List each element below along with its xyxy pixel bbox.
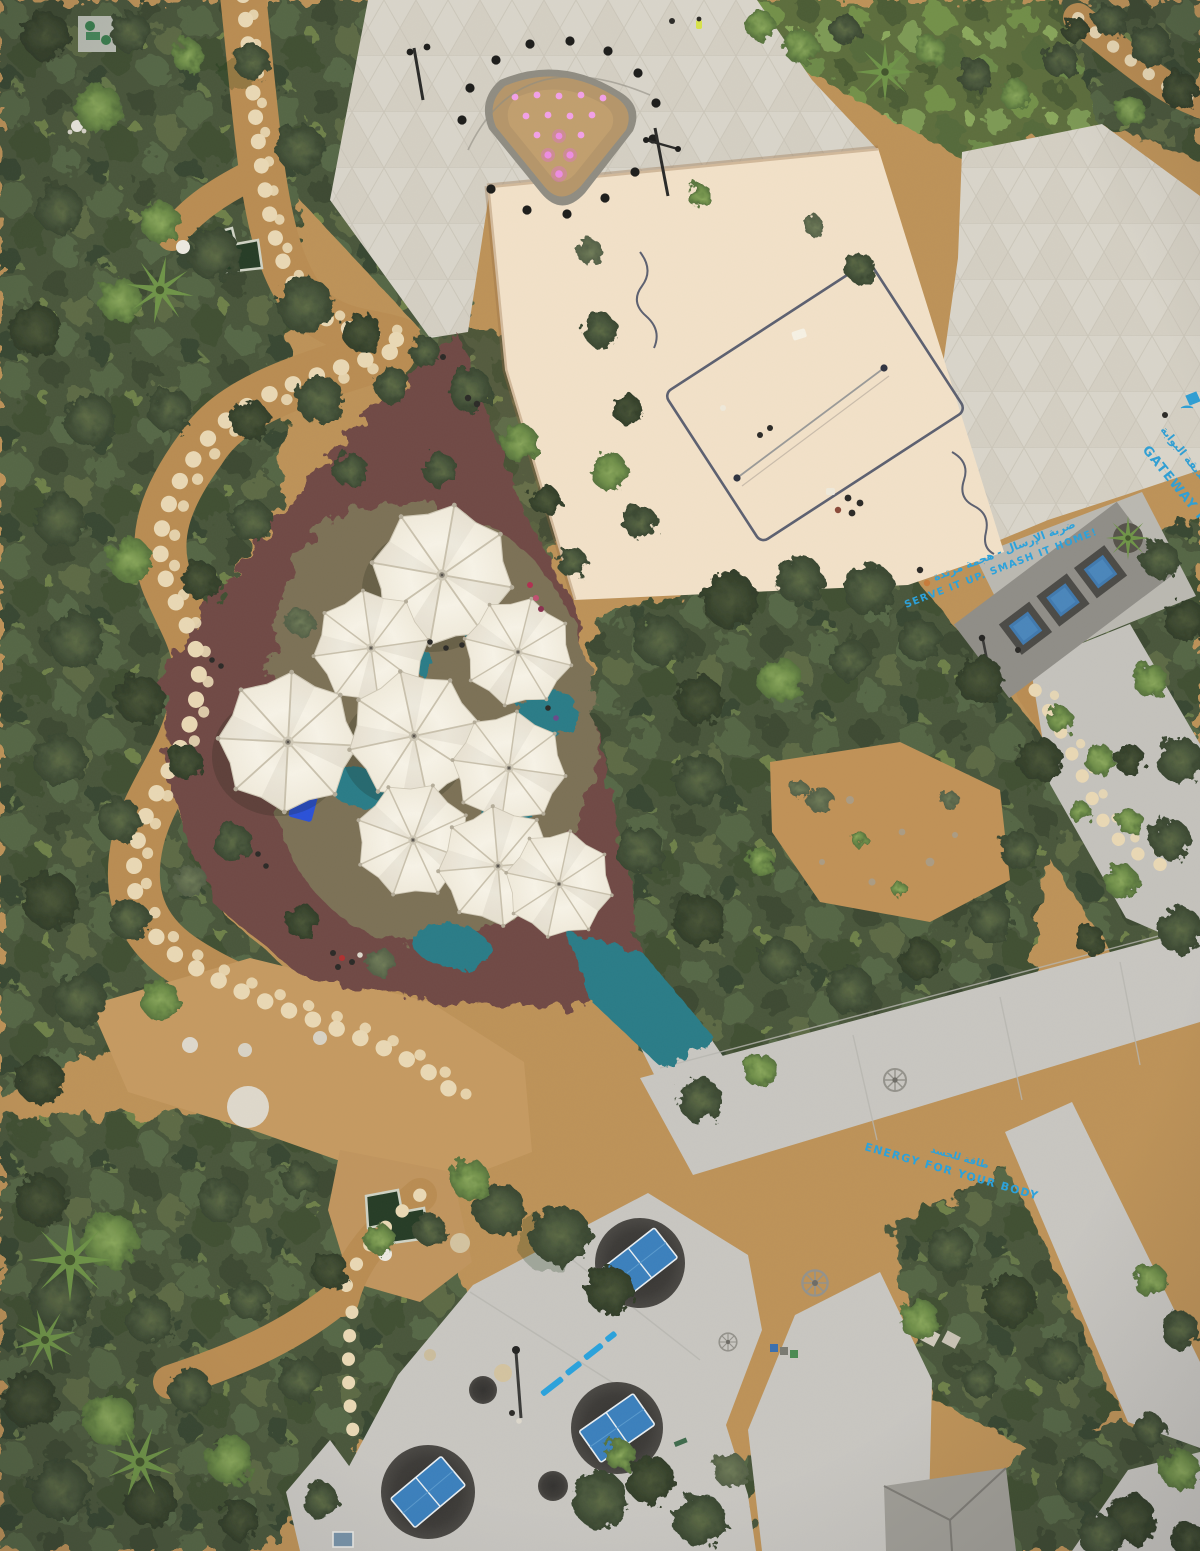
vignette-overlay bbox=[0, 0, 1200, 1551]
park-aerial-photo: ضربة الإرسال - هجمة مرتدة SERVE IT UP. S… bbox=[0, 0, 1200, 1551]
scene-canvas: ضربة الإرسال - هجمة مرتدة SERVE IT UP. S… bbox=[0, 0, 1200, 1551]
